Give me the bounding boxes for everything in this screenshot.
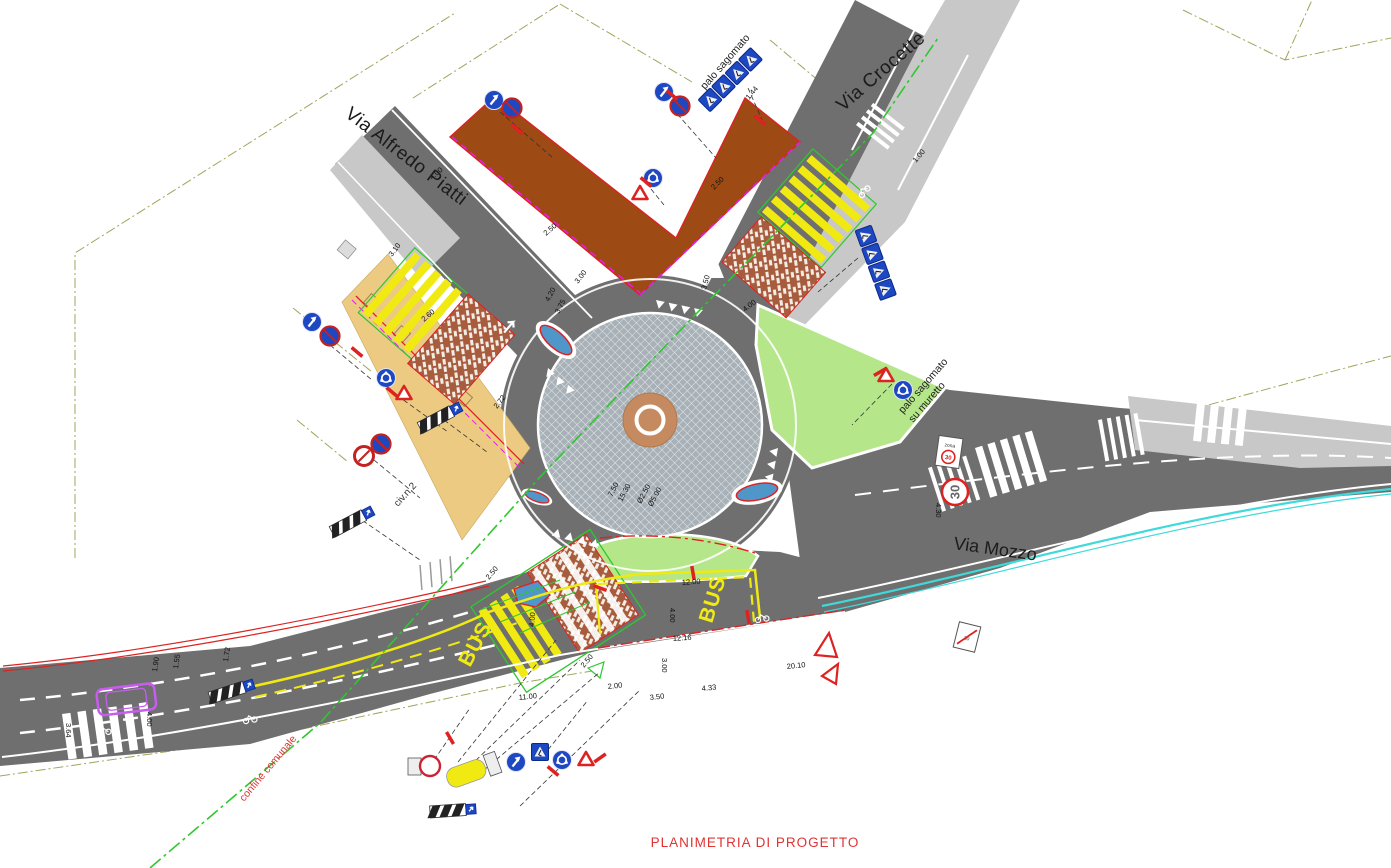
roundabout-sign-west [377,369,396,388]
yield-sign-bottom [579,752,594,765]
roundabout-sign-north [644,169,663,188]
red-triangle-marker-2 [822,664,838,684]
no-transit-plate-sign [408,756,440,776]
no-stopping-sign-2 [671,97,690,116]
dimension-label: 11.00 [518,691,537,702]
dimension-label: 20.10 [786,660,806,671]
plan-canvas: 30 BUS BUS zona [0,0,1391,868]
keep-right-sign-1 [485,91,504,110]
keep-right-sign-bottom [507,753,526,772]
dimension-label: 3.00 [572,268,588,285]
dimension-label: 12.16 [673,633,692,643]
planimetry-drawing: 30 BUS BUS zona [0,0,1391,868]
zona-30-sign: zona 30 [935,435,963,468]
dimension-label: 3.00 [660,658,669,673]
drawing-title: PLANIMETRIA DI PROGETTO [651,835,860,850]
roundabout-sign-bottom [553,751,572,770]
no-stopping-sign-3 [321,327,340,346]
keep-right-sign-3 [303,313,322,332]
dimension-label: 3.64 [64,723,73,738]
hazard-board-4 [427,803,477,818]
dimension-label: 1.44 [744,84,760,101]
bus-stop-sign [444,751,502,790]
dimension-label: 2.00 [607,681,622,691]
dimension-label: 2.50 [484,564,500,581]
grate-square [337,240,356,259]
dimension-label: 4.00 [527,612,537,627]
dimension-label: 4.30 [934,503,943,518]
no-stopping-sign-1 [503,99,522,118]
speed-30-value: 30 [948,485,963,499]
pedestrian-sign [875,279,897,301]
pedestrian-sign [868,261,890,283]
no-stopping-sign-4 [372,435,391,454]
dimension-label: 12.00 [682,577,701,587]
red-triangle-marker-1 [815,633,837,657]
dimension-label: 4.00 [145,712,154,727]
no-transit-sign [355,447,374,466]
end-zona-30-sign: 30 [953,622,981,653]
yield-sign-north [633,186,648,199]
note-civico: civ.n.2 [392,480,419,509]
pedestrian-sign-bottom [532,744,549,761]
dimension-label: 3.50 [649,692,664,702]
dimension-label: 4.00 [668,608,677,623]
central-island [623,393,677,447]
dimension-label: 4.33 [701,683,716,693]
speed-30-road-marking: 30 [942,479,968,505]
